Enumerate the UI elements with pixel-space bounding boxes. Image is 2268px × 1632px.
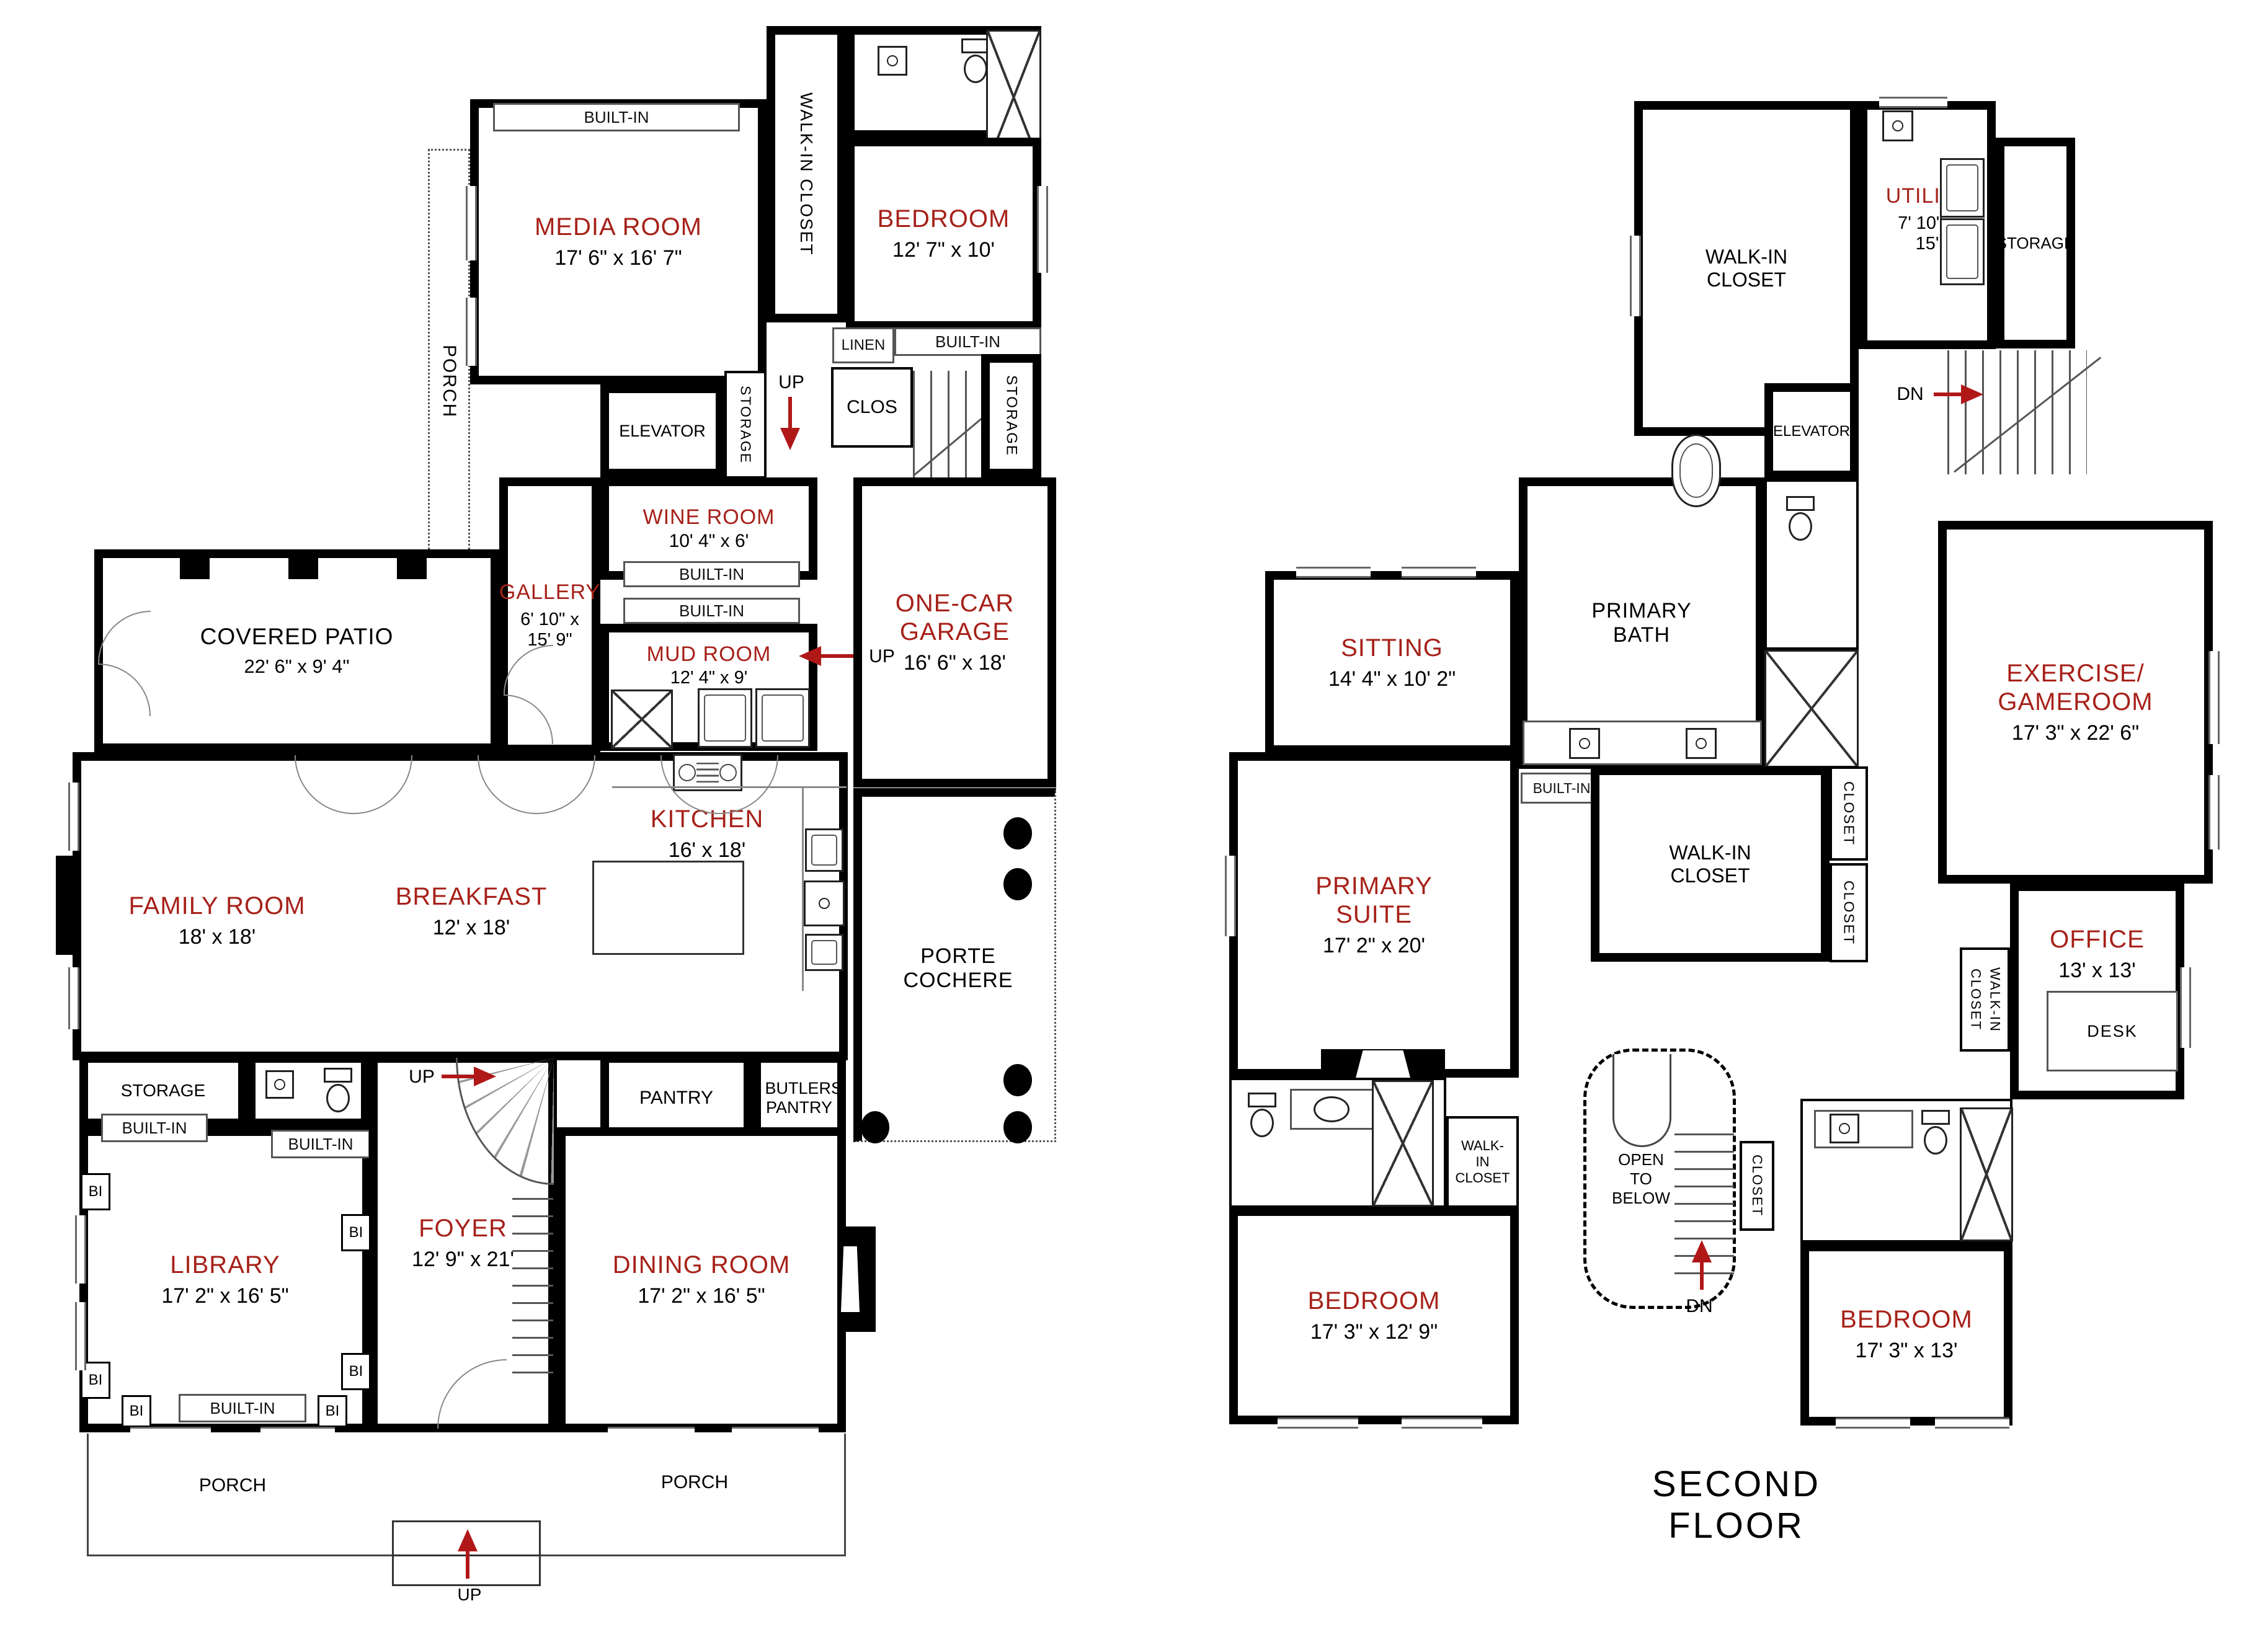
window	[68, 967, 79, 1029]
column-dot	[1003, 1111, 1032, 1143]
washer-icon	[698, 688, 752, 748]
up-label: UP	[857, 644, 907, 668]
up-label: UP	[397, 1064, 447, 1089]
toilet-icon	[1921, 1110, 1950, 1156]
storage-f2: STORAGE	[1996, 138, 2075, 348]
media-room: MEDIA ROOM 17' 6" x 16' 7"	[470, 99, 767, 384]
window	[1278, 1417, 1358, 1429]
bedroom-f2-left: BEDROOM 17' 3" x 12' 9"	[1229, 1207, 1519, 1424]
built-in-shelf: BUILT-IN	[894, 327, 1041, 356]
sink-icon	[1569, 728, 1600, 759]
media-room-dims: 17' 6" x 16' 7"	[554, 246, 682, 270]
porch-label: PORCH	[186, 1473, 279, 1497]
window	[2208, 775, 2220, 849]
dn-label: DN	[1668, 1293, 1730, 1318]
toilet-icon	[1786, 496, 1815, 542]
built-in-shelf: BUILT-IN	[179, 1394, 306, 1422]
tub-icon	[1671, 434, 1721, 507]
up-label: UP	[442, 1582, 497, 1607]
fridge-icon	[805, 828, 843, 872]
porch-label: PORCH	[648, 1470, 741, 1494]
washer-icon	[1940, 158, 1985, 218]
elevator-f2: ELEVATOR	[1764, 383, 1859, 479]
sitting-room: SITTING 14' 4" x 10' 2"	[1265, 571, 1519, 754]
window	[1879, 97, 1947, 108]
window	[1402, 567, 1476, 578]
bay-window	[56, 856, 74, 955]
built-in-shelf: BUILT-IN	[101, 1114, 208, 1142]
second-floor-title: SECOND FLOOR	[1588, 1463, 1885, 1546]
sink-icon	[878, 46, 907, 76]
stairs-flight	[512, 1187, 553, 1373]
patio-pillar	[397, 549, 427, 579]
down-arrow-icon	[780, 397, 800, 450]
window	[75, 1215, 86, 1284]
floor-plan: PORCH MEDIA ROOM 17' 6" x 16' 7" BUILT-I…	[0, 0, 2268, 1632]
window	[466, 186, 477, 260]
window	[68, 783, 79, 851]
window	[2208, 651, 2220, 744]
closet-1: CLOSET	[1830, 766, 1868, 861]
column-dot	[1003, 1064, 1032, 1096]
dn-label: DN	[1885, 381, 1935, 406]
sink-icon	[1882, 110, 1913, 141]
window	[1630, 236, 1641, 316]
sink-icon	[1686, 728, 1717, 759]
spiral-stairs	[1612, 1054, 1671, 1147]
column-dot	[861, 1111, 889, 1143]
shower-icon	[1960, 1107, 2013, 1241]
stairs-up-f1	[913, 371, 981, 477]
right-arrow-icon	[442, 1067, 496, 1086]
window	[1935, 1417, 2009, 1429]
closet-3: CLOSET	[1740, 1141, 1774, 1231]
patio-pillar	[180, 549, 210, 579]
sink-icon	[1314, 1096, 1350, 1122]
shower-icon	[611, 690, 673, 749]
storage-top-right: STORAGE	[981, 354, 1041, 477]
bedroom-f1: BEDROOM 12' 7" x 10'	[846, 138, 1041, 330]
window	[1296, 567, 1371, 578]
window	[466, 298, 477, 366]
sink-icon	[804, 880, 845, 926]
up-arrow-icon	[458, 1529, 478, 1579]
column-dot	[1003, 817, 1032, 849]
walk-in-closet-office: WALK-IN CLOSET	[1960, 947, 2010, 1052]
right-arrow-icon	[1934, 384, 1983, 404]
patio-pillar	[288, 549, 318, 579]
bedroom-f1-dims: 12' 7" x 10'	[892, 238, 995, 262]
cabinet-icon	[805, 934, 843, 971]
bedroom-f1-name: BEDROOM	[878, 205, 1010, 233]
walk-in-closet-f1: WALK-IN CLOSET	[767, 26, 846, 322]
toilet-icon	[324, 1068, 352, 1114]
dryer-icon	[755, 688, 810, 748]
bi-marker: BI	[81, 1173, 110, 1210]
shower-icon	[1764, 650, 1859, 768]
bi-marker: BI	[318, 1395, 347, 1427]
exercise-gameroom: EXERCISE/ GAMEROOM 17' 3" x 22' 6"	[1938, 521, 2213, 884]
kitchen-island	[592, 861, 744, 955]
closet-2: CLOSET	[1830, 863, 1868, 962]
bi-marker: BI	[341, 1214, 371, 1251]
desk: DESK	[2047, 991, 2178, 1071]
left-arrow-icon	[799, 646, 853, 666]
up-label: UP	[767, 370, 816, 394]
window	[1836, 1417, 1910, 1429]
walk-in-closet-suite: WALK-IN CLOSET	[1446, 1116, 1519, 1208]
covered-patio: COVERED PATIO 22' 6" x 9' 4"	[94, 549, 499, 752]
window	[1037, 186, 1048, 273]
library: LIBRARY 17' 2" x 16' 5"	[79, 1127, 371, 1432]
built-in-shelf: BUILT-IN	[493, 103, 740, 131]
storage-vertical-f1: STORAGE	[724, 371, 767, 479]
built-in-shelf: BUILT-IN	[623, 598, 800, 624]
dining-room: DINING ROOM 17' 2" x 16' 5"	[557, 1127, 846, 1432]
window	[1225, 856, 1236, 936]
clos-closet: CLOS	[831, 367, 913, 448]
toilet-icon	[1248, 1093, 1276, 1138]
up-arrow-icon	[1692, 1240, 1712, 1290]
vanity-counter	[1814, 1110, 1913, 1148]
walk-in-closet-f1-label: WALK-IN CLOSET	[796, 92, 816, 255]
elevator-f1: ELEVATOR	[600, 384, 724, 477]
sink-icon	[265, 1070, 294, 1099]
breakfast-label: BREAKFAST 12' x 18'	[366, 877, 577, 946]
primary-suite: PRIMARY SUITE 17' 2" x 20'	[1229, 752, 1519, 1078]
porch-left-label: PORCH	[438, 345, 460, 418]
garage: ONE-CAR GARAGE 16' 6" x 18'	[853, 477, 1056, 787]
vanity-counter	[1523, 721, 1762, 765]
family-room-label: FAMILY ROOM 18' x 18'	[112, 887, 322, 955]
built-in-shelf: BUILT-IN	[623, 561, 800, 587]
linen-closet: LINEN	[832, 327, 894, 363]
media-room-name: MEDIA ROOM	[535, 213, 702, 241]
bedroom-f2-right: BEDROOM 17' 3" x 13'	[1800, 1243, 2012, 1426]
built-in-shelf: BUILT-IN	[271, 1130, 370, 1158]
fireplace-notch	[841, 1246, 860, 1312]
dryer-icon	[1940, 218, 1985, 285]
window	[75, 1302, 86, 1370]
window	[1402, 1417, 1482, 1429]
fireplace-notch	[1355, 1050, 1411, 1080]
bi-marker: BI	[341, 1353, 371, 1390]
column-dot	[1003, 868, 1032, 900]
shower-icon	[1372, 1080, 1434, 1207]
walk-in-closet-f2-middle: WALK-IN CLOSET	[1591, 766, 1830, 962]
porch-left: PORCH	[428, 149, 470, 614]
bi-marker: BI	[122, 1395, 151, 1427]
sink-icon	[1830, 1114, 1859, 1143]
window	[2180, 967, 2191, 1048]
stairs-down-f2	[1947, 350, 2087, 474]
